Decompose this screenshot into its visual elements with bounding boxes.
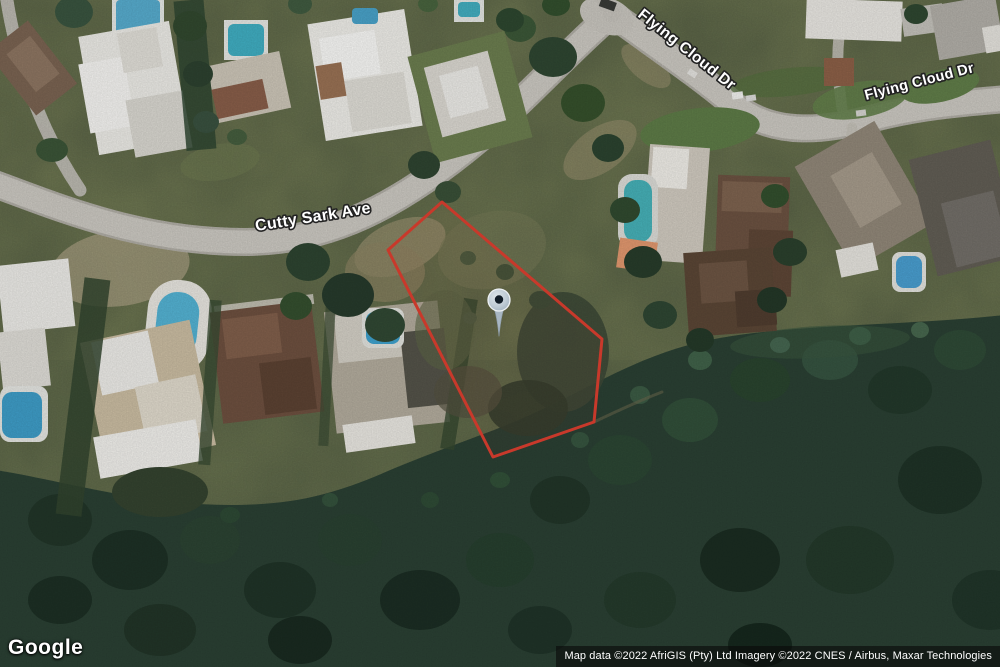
map-viewport[interactable]: Cutty Sark Ave Flying Cloud Dr Flying Cl… xyxy=(0,0,1000,667)
google-logo[interactable]: Google xyxy=(8,636,83,660)
map-attribution: Map data ©2022 AfriGIS (Pty) Ltd Imagery… xyxy=(556,646,1000,667)
pin-dot xyxy=(495,295,503,303)
satellite-imagery[interactable]: Cutty Sark Ave Flying Cloud Dr Flying Cl… xyxy=(0,0,1000,667)
